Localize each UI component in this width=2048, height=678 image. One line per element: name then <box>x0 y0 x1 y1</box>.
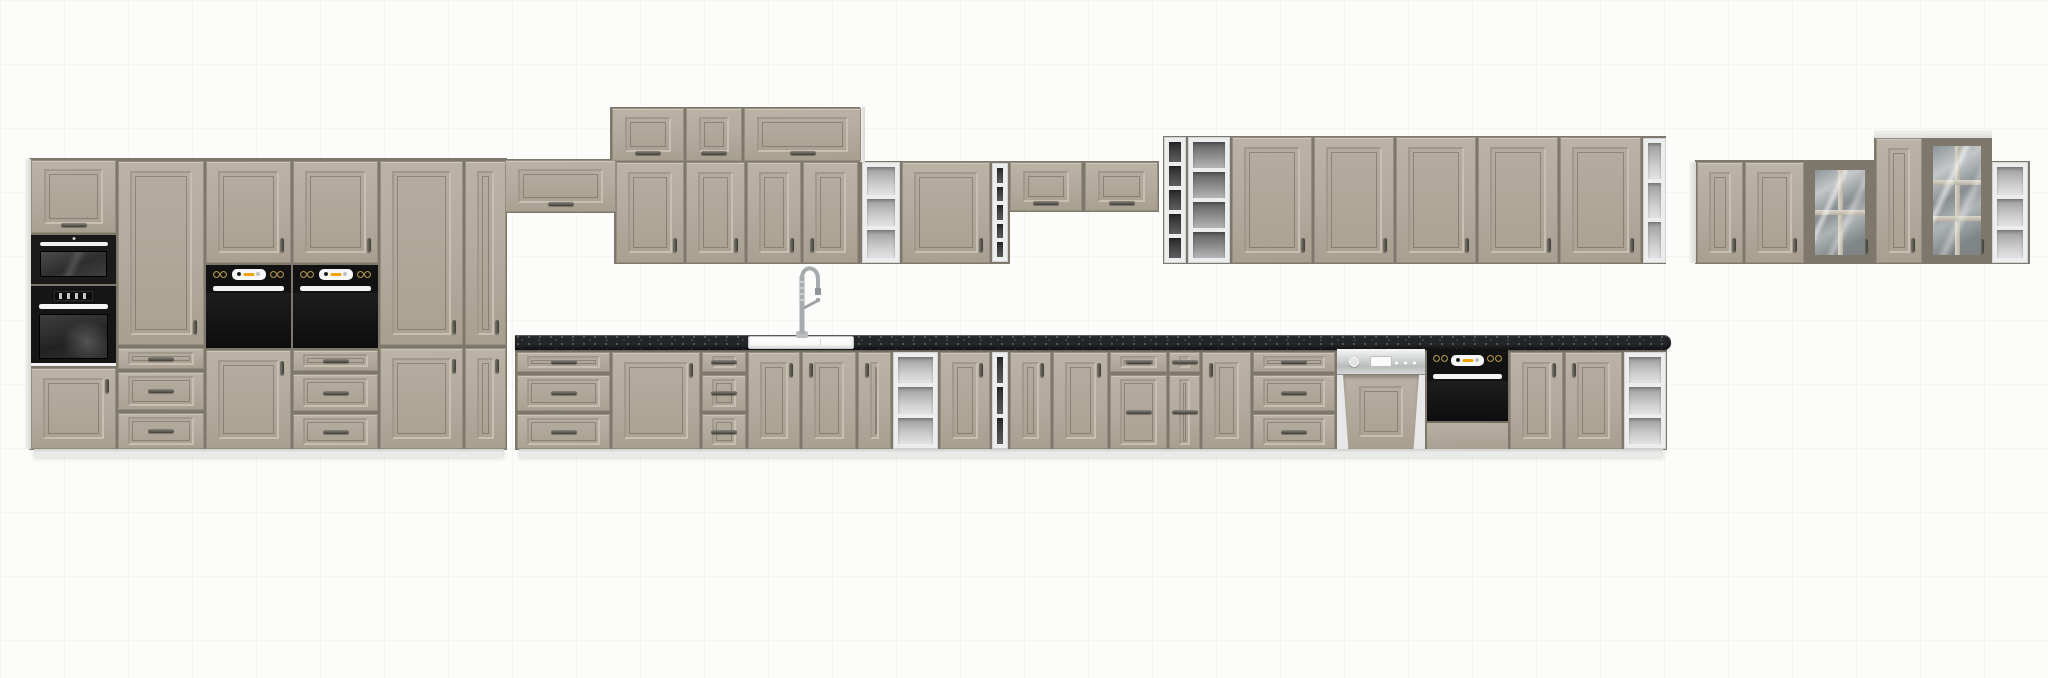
handle <box>323 391 349 395</box>
base-open-shelf <box>893 352 938 449</box>
oven-knob-icon <box>1441 355 1448 362</box>
oven-display <box>1462 359 1473 363</box>
oven-trim <box>31 363 116 366</box>
pantry-drawer-3 <box>118 413 204 449</box>
oven-display-panel <box>232 269 266 280</box>
wall-corner-shelf <box>1643 138 1666 263</box>
base-drawer-e1 <box>1253 352 1335 372</box>
handle <box>1097 363 1101 377</box>
far-right-top-cap <box>1874 130 1992 138</box>
door-panel <box>815 172 846 253</box>
oven-tower-drawer-2 <box>293 374 378 411</box>
base-drawer-e2 <box>1253 375 1335 411</box>
base-door-f <box>1202 352 1251 449</box>
door-panel <box>814 362 844 439</box>
handle <box>1465 238 1469 252</box>
oven-display <box>330 273 341 277</box>
handle <box>148 389 174 393</box>
door-panel <box>43 378 104 439</box>
handle <box>1040 363 1044 377</box>
handle <box>1383 238 1387 252</box>
handle <box>495 320 499 334</box>
oven-knob-icon <box>277 271 284 278</box>
door-panel <box>130 171 192 335</box>
dishwasher-buttons <box>1383 361 1417 365</box>
handle <box>1172 360 1198 364</box>
door-panel <box>1022 362 1039 439</box>
plinth-main <box>519 449 1663 457</box>
handle <box>367 238 371 252</box>
oven-tower-drawer-3 <box>293 414 378 449</box>
base-drawer-a1 <box>517 352 610 372</box>
door-panel <box>1757 172 1792 253</box>
door-panel <box>759 172 789 253</box>
oven-knob-icon <box>237 272 241 276</box>
door-panel <box>477 358 494 439</box>
door-panel <box>1214 362 1239 439</box>
pantry-drawer-1 <box>118 348 204 369</box>
far-right-side-panel <box>1689 162 1696 263</box>
oven-handle <box>300 286 371 291</box>
shelf-cell <box>1648 183 1661 219</box>
far-right-glass-door-2 <box>1924 138 1990 263</box>
handle <box>1547 238 1551 252</box>
microwave-button <box>72 237 75 240</box>
base-door-d <box>1010 352 1051 449</box>
handle <box>1301 238 1305 252</box>
oven-tower-upper-door-1 <box>206 161 291 263</box>
top-cabinet-door-1 <box>612 108 684 161</box>
mullion-vertical <box>1955 146 1960 255</box>
dishwasher <box>1337 349 1425 449</box>
shelf-cell <box>1193 142 1225 168</box>
oven-knob-icon <box>256 272 260 276</box>
built-in-oven-undercounter <box>1427 349 1508 449</box>
shelf-cell <box>1169 166 1181 186</box>
handle <box>551 430 577 434</box>
shelf-cell <box>997 387 1003 413</box>
door-panel <box>1098 171 1145 202</box>
handle <box>452 359 456 373</box>
handle <box>1552 363 1556 377</box>
tall-cabinet-upper-door <box>380 161 463 345</box>
door-panel <box>952 362 978 439</box>
door-panel <box>1888 148 1910 253</box>
handle <box>105 379 109 393</box>
base-drawer-d2 <box>1169 375 1200 449</box>
wall-door-4 <box>803 162 858 263</box>
wall-door-1 <box>616 162 684 263</box>
base-door-h <box>1565 352 1622 449</box>
wall-tall-door-1 <box>1232 137 1312 263</box>
tall-narrow-upper-door <box>465 161 506 345</box>
oven-display <box>54 291 93 301</box>
pantry-tall-door <box>118 161 204 345</box>
oven-knob-icon <box>364 271 371 278</box>
handle <box>1172 410 1198 414</box>
door-panel <box>1577 362 1610 439</box>
oven-door <box>293 293 378 348</box>
oven-display-panel <box>319 269 353 280</box>
shelf-cell <box>1997 230 2023 258</box>
door-panel <box>1359 386 1403 437</box>
oven-handle <box>39 304 109 309</box>
shelf-cell <box>1997 167 2023 195</box>
handle <box>1126 410 1152 414</box>
door-panel <box>392 171 451 335</box>
door-panel <box>625 117 671 152</box>
shelf-cell <box>898 387 933 413</box>
mullion-vertical <box>1838 170 1843 255</box>
built-in-microwave <box>31 235 116 284</box>
shelf-cell <box>997 205 1003 220</box>
wall-flip-door-2 <box>1085 162 1158 211</box>
handle <box>323 359 349 363</box>
door-panel <box>1709 172 1731 253</box>
handle <box>711 430 737 434</box>
handle <box>148 357 174 361</box>
oven-tower-drawer-1 <box>293 350 378 371</box>
handle <box>789 363 793 377</box>
base-drawer-a2 <box>517 375 610 411</box>
shelf-cell <box>1629 357 1661 383</box>
faucet <box>778 250 824 338</box>
shelf-cell <box>1193 172 1225 198</box>
handle <box>701 151 727 155</box>
door-panel <box>1023 171 1069 202</box>
shelf-cell <box>1193 202 1225 228</box>
base-drawer-b1 <box>702 352 746 372</box>
handle <box>1126 360 1152 364</box>
shelf-cell <box>997 224 1003 239</box>
shelf-cell <box>867 199 895 227</box>
wall-tall-door-2 <box>1314 137 1394 263</box>
handle <box>809 363 813 377</box>
kitchen-render <box>0 0 2048 678</box>
handle <box>1572 363 1576 377</box>
wall-rack-narrow-2 <box>1164 137 1186 263</box>
shelf-cell <box>997 168 1003 183</box>
door-panel <box>1326 147 1382 253</box>
base-door-g <box>1510 352 1563 449</box>
handle <box>865 363 869 377</box>
oven-knob-icon <box>324 272 328 276</box>
wall-rack-narrow-1 <box>992 163 1008 262</box>
handle <box>689 363 693 377</box>
door-panel <box>1065 362 1096 439</box>
built-in-double-oven-1 <box>206 265 291 348</box>
door-panel <box>1490 147 1546 253</box>
oven-control-panel <box>293 265 378 283</box>
handle <box>280 361 284 375</box>
microwave-handle <box>40 242 108 246</box>
shelf-cell <box>997 357 1003 383</box>
worktop <box>515 335 1671 350</box>
wall-tall-door-3 <box>1396 137 1476 263</box>
door-panel <box>218 360 279 439</box>
base-drawer-a3 <box>517 414 610 449</box>
oven-knob-icon <box>357 271 364 278</box>
glass-pane <box>1815 170 1865 255</box>
oven-knob-icon <box>1456 358 1460 362</box>
handle <box>1281 430 1307 434</box>
door-panel <box>757 117 848 152</box>
mullion-horizontal <box>1815 210 1865 215</box>
handle <box>1033 201 1059 205</box>
handle <box>1109 201 1135 205</box>
shelf-cell <box>1629 387 1661 413</box>
oven-tower-base-door-1 <box>206 350 291 449</box>
tall-narrow-base-door <box>465 348 506 449</box>
dishwasher-door-panel <box>1343 374 1419 449</box>
glass-pane <box>1933 146 1981 255</box>
wall-open-shelf <box>862 162 900 263</box>
plinth-left <box>34 449 504 457</box>
shelf-cell <box>1169 142 1181 162</box>
base-corner-shelf <box>1624 352 1666 449</box>
oven-control-panel <box>206 265 291 283</box>
handle <box>979 363 983 377</box>
base-drawer-c2 <box>1110 375 1167 449</box>
wall-door-2 <box>686 162 745 263</box>
sink-base-door-left <box>748 352 800 449</box>
shelf-cell <box>997 187 1003 202</box>
far-right-corner-shelf <box>1992 162 2028 263</box>
oven-knob-icon <box>300 271 307 278</box>
base-drawer-b3 <box>702 414 746 449</box>
door-panel <box>218 171 279 253</box>
shelf-cell <box>1193 232 1225 258</box>
oven-display-panel <box>1451 355 1483 366</box>
handle <box>148 429 174 433</box>
handle <box>1732 238 1736 252</box>
base-drawer-b2 <box>702 375 746 411</box>
door-panel <box>44 169 103 224</box>
door-panel <box>1244 147 1300 253</box>
handle <box>551 391 577 395</box>
oven-knob-icon <box>270 271 277 278</box>
shelf-cell <box>898 357 933 383</box>
pantry-drawer-2 <box>118 372 204 410</box>
oven-base-front <box>1427 421 1508 449</box>
door-panel <box>305 171 366 253</box>
base-drawer-e3 <box>1253 414 1335 449</box>
built-in-oven-tower <box>31 286 116 366</box>
oven-tower-upper-door-2 <box>293 161 378 263</box>
wall-tall-door-5 <box>1560 137 1641 263</box>
oven-window <box>39 314 108 359</box>
oven-knob-icon <box>1495 355 1502 362</box>
base-door-c <box>940 352 990 449</box>
door-panel <box>870 362 879 439</box>
handle <box>280 238 284 252</box>
handle <box>1281 391 1307 395</box>
mullion-horizontal <box>1933 216 1981 221</box>
door-panel <box>1408 147 1464 253</box>
door-panel <box>699 117 729 152</box>
shelf-cell <box>1169 238 1181 258</box>
faucet-icon <box>778 250 824 338</box>
far-right-wall-door-2 <box>1745 162 1804 263</box>
door-panel <box>392 358 451 439</box>
shelf-cell <box>1629 418 1661 444</box>
dishwasher-control-panel <box>1337 349 1425 375</box>
door-panel <box>1522 362 1551 439</box>
base-drawer-c1 <box>1110 352 1167 372</box>
base-rack-narrow <box>992 352 1008 449</box>
handle <box>1911 238 1915 252</box>
oven-door <box>206 293 291 348</box>
wall-flip-door-1 <box>1010 162 1082 211</box>
shelf-cell <box>1648 143 1661 179</box>
door-panel <box>624 362 688 439</box>
wall-tall-door-4 <box>1478 137 1558 263</box>
oven-handle <box>1433 374 1501 379</box>
handle <box>1793 238 1797 252</box>
shelf-cell <box>867 230 895 258</box>
door-panel <box>518 169 603 203</box>
oven-knob-icon <box>307 271 314 278</box>
door-panel <box>760 362 788 439</box>
top-cabinet-door-2 <box>686 108 742 161</box>
tower-base-door <box>31 368 116 449</box>
microwave-window <box>40 251 107 277</box>
door-panel <box>1572 147 1629 253</box>
handle <box>551 360 577 364</box>
handle <box>1630 238 1634 252</box>
shelf-cell <box>1997 199 2023 227</box>
oven-knob-icon <box>1433 355 1440 362</box>
sink-base-door-right <box>802 352 856 449</box>
far-right-wall-door-1 <box>1697 162 1743 263</box>
far-right-glass-door-1 <box>1806 162 1874 263</box>
handle <box>734 238 738 252</box>
oven-knob-icon <box>213 271 220 278</box>
base-door-a <box>612 352 700 449</box>
far-right-wall-door-3 <box>1876 138 1922 263</box>
oven-knob-icon <box>220 271 227 278</box>
handle <box>979 238 983 252</box>
oven-knob-icon <box>343 272 347 276</box>
dishwasher-power-button <box>1349 357 1359 367</box>
wall-rack-wide <box>1188 137 1230 263</box>
oven-knob-icon <box>1475 358 1479 362</box>
oven-handle <box>213 286 284 291</box>
shelf-cell <box>997 418 1003 444</box>
shelf-cell <box>1169 214 1181 234</box>
handle <box>790 151 816 155</box>
handle <box>1209 363 1213 377</box>
handle <box>548 202 574 206</box>
base-drawer-d1 <box>1169 352 1200 372</box>
base-door-b <box>858 352 891 449</box>
shelf-cell <box>997 242 1003 257</box>
handle <box>711 391 737 395</box>
top-cabinet-door-3 <box>744 108 861 161</box>
door-panel <box>477 171 494 335</box>
door-panel <box>698 172 733 253</box>
oven-display <box>243 273 254 277</box>
door-panel <box>628 172 672 253</box>
oven-door <box>1427 381 1508 423</box>
shelf-cell <box>1169 190 1181 210</box>
oven-knob-icon <box>1487 355 1494 362</box>
wall-door-3 <box>747 162 801 263</box>
handle <box>635 151 661 155</box>
handle <box>323 430 349 434</box>
handle <box>193 320 197 334</box>
tall-cabinet-base-door <box>380 348 463 449</box>
handle <box>673 238 677 252</box>
shelf-cell <box>867 167 895 195</box>
shelf-cell <box>898 418 933 444</box>
tower-top-door <box>31 160 116 233</box>
bridge-cabinet-door <box>505 160 616 212</box>
shelf-cell <box>1648 222 1661 258</box>
door-panel <box>914 172 978 253</box>
handle <box>711 360 737 364</box>
handle <box>61 223 87 227</box>
oven-control-panel <box>1427 349 1508 371</box>
mullion-horizontal <box>1933 180 1981 185</box>
base-door-e <box>1053 352 1108 449</box>
handle <box>1281 360 1307 364</box>
wall-door-5 <box>902 162 990 263</box>
handle <box>495 359 499 373</box>
handle <box>452 320 456 334</box>
built-in-double-oven-2 <box>293 265 378 348</box>
